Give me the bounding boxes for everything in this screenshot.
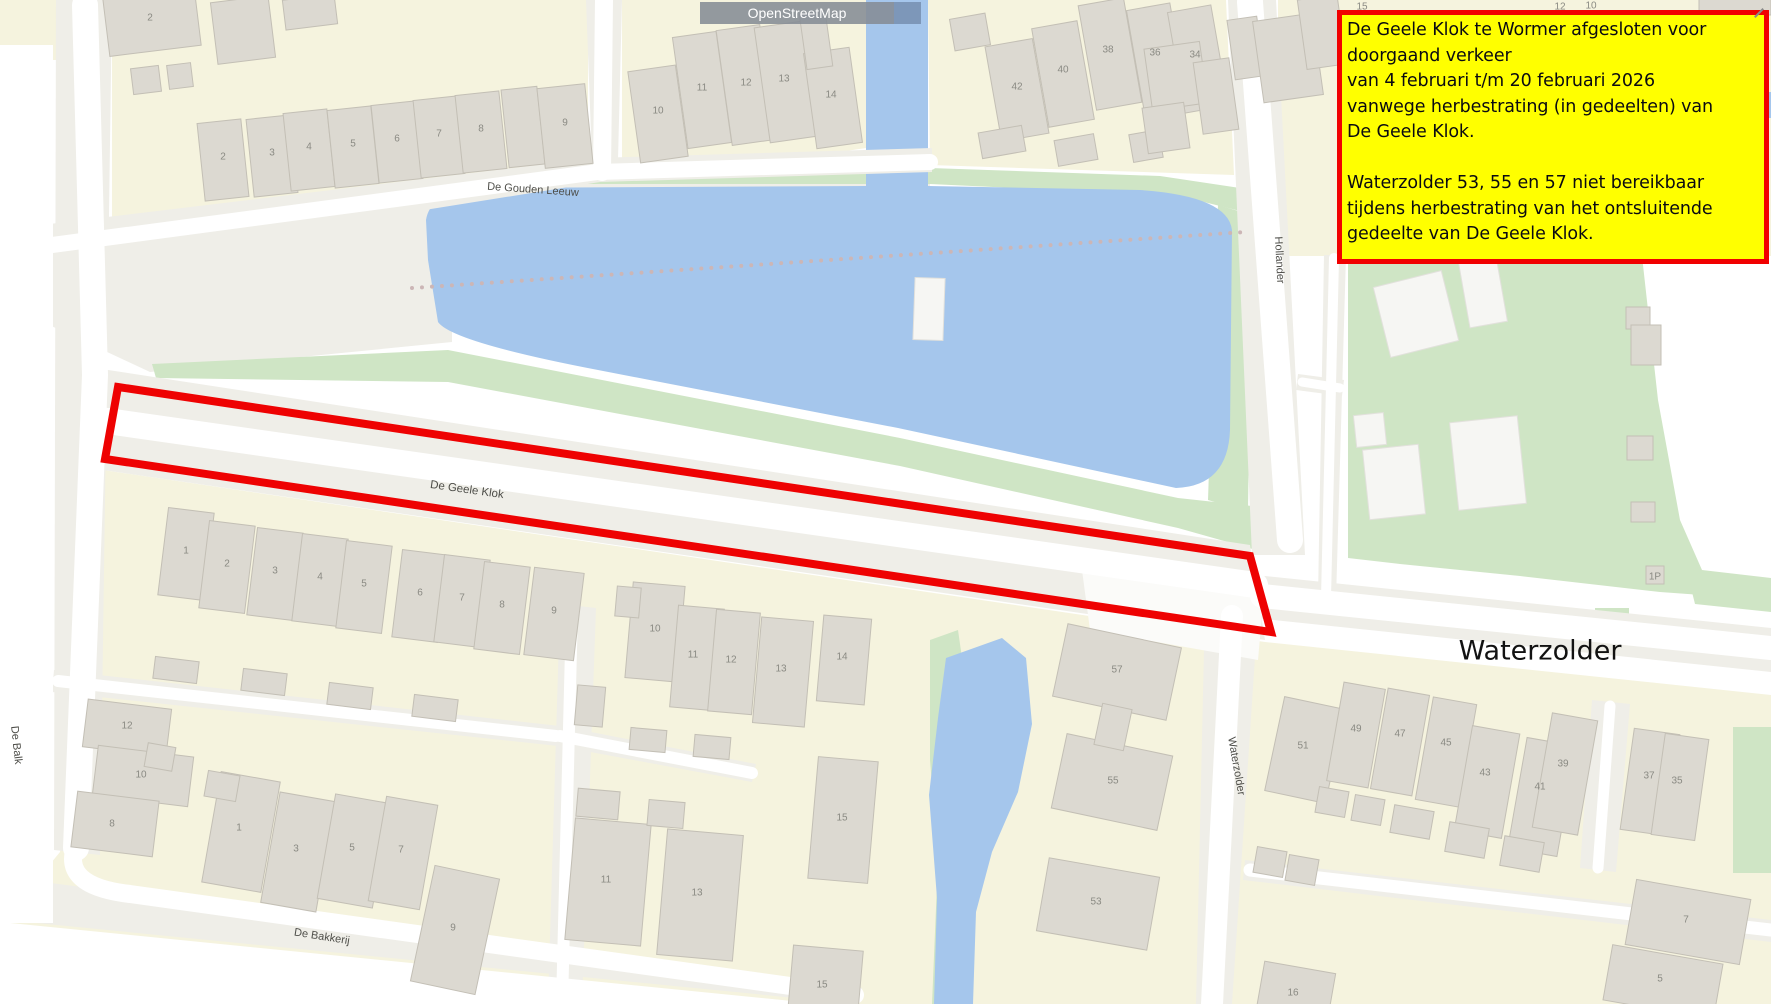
building	[1500, 836, 1545, 872]
house-number: 2	[224, 559, 230, 570]
closure-note-line: Waterzolder 53, 55 en 57 niet bereikbaar	[1347, 171, 1759, 197]
building	[949, 13, 990, 51]
house-number: 14	[836, 652, 848, 663]
house-number: 5	[361, 579, 367, 590]
house-number: 10	[649, 624, 661, 635]
building	[412, 694, 458, 721]
closure-note-line: van 4 februari t/m 20 februari 2026	[1347, 69, 1759, 95]
building	[241, 668, 287, 695]
house-number: 5	[349, 843, 355, 854]
building	[693, 734, 731, 759]
house-number: 10	[135, 770, 147, 781]
house-number: 49	[1350, 724, 1362, 735]
house-number: 12	[121, 721, 133, 732]
building	[629, 727, 667, 752]
building	[1351, 795, 1385, 826]
house-number: 10	[652, 106, 664, 117]
closure-note-line: De Geele Klok.	[1347, 120, 1759, 146]
osm-attribution[interactable]: OpenStreetMap	[700, 2, 894, 24]
closure-note-line: De Geele Klok te Wormer afgesloten voor	[1347, 18, 1759, 44]
building	[1631, 325, 1661, 365]
house-number: 45	[1440, 738, 1452, 749]
building	[576, 788, 620, 820]
house-number: 1	[183, 546, 189, 557]
house-number: 7	[459, 593, 465, 604]
house-number: 7	[1683, 915, 1689, 926]
closure-note-line: doorgaand verkeer	[1347, 44, 1759, 70]
building	[204, 770, 240, 801]
house-number: 41	[1534, 782, 1546, 793]
osm-attribution-label: OpenStreetMap	[748, 5, 847, 21]
house-number: 13	[691, 888, 703, 899]
house-number: 12	[725, 655, 737, 666]
map-viewport[interactable]: 2234567891011121314424038363415121012345…	[0, 0, 1771, 1004]
building	[1353, 413, 1386, 448]
house-number: 16	[1287, 988, 1299, 999]
building	[144, 743, 176, 771]
closure-note-line: vanwege herbestrating (in gedeelten) van	[1347, 95, 1759, 121]
closure-note-box: De Geele Klok te Wormer afgesloten voord…	[1337, 10, 1769, 264]
building	[71, 791, 159, 857]
building	[615, 586, 642, 618]
building	[1362, 444, 1425, 519]
building	[327, 682, 373, 709]
closure-note-line: tijdens herbestrating van het ontsluiten…	[1347, 197, 1759, 223]
house-number: 11	[601, 875, 612, 886]
house-number: 4	[317, 572, 323, 583]
building	[1285, 855, 1319, 886]
house-number: 9	[450, 923, 456, 934]
house-number: 3	[293, 844, 299, 855]
house-number: 11	[688, 650, 699, 661]
house-number: 40	[1057, 65, 1069, 76]
house-number: 3	[269, 148, 275, 159]
house-number: 12	[740, 78, 752, 89]
building	[1315, 787, 1349, 818]
house-number: 43	[1479, 768, 1491, 779]
house-number: 8	[109, 819, 115, 830]
house-number: 47	[1394, 729, 1406, 740]
building	[787, 945, 864, 1004]
house-number: 7	[436, 129, 442, 140]
building	[1142, 102, 1190, 153]
house-number: 7	[398, 845, 404, 856]
house-number: 36	[1149, 48, 1161, 59]
building	[1627, 436, 1653, 460]
house-number: 9	[551, 606, 557, 617]
house-number: 6	[417, 588, 423, 599]
house-number: 15	[816, 980, 828, 991]
house-number: 9	[562, 118, 568, 129]
area-label: Waterzolder	[1459, 635, 1623, 666]
house-number: 6	[394, 134, 400, 145]
resize-handle-icon	[1754, 8, 1764, 18]
house-number: 55	[1107, 776, 1119, 787]
street-name-label: Hollander	[1272, 236, 1286, 284]
house-number: 13	[775, 664, 787, 675]
building	[913, 277, 945, 340]
house-number: 37	[1643, 771, 1655, 782]
building	[1445, 822, 1490, 858]
house-number: 14	[825, 90, 837, 101]
building	[1253, 847, 1287, 878]
house-number: 4	[306, 142, 312, 153]
house-number: 15	[836, 813, 848, 824]
house-number: 11	[697, 83, 708, 94]
house-number: 51	[1297, 741, 1309, 752]
house-number: 38	[1102, 45, 1114, 56]
house-number: 53	[1090, 897, 1102, 908]
building	[1631, 502, 1655, 522]
house-number: 13	[778, 74, 790, 85]
building	[574, 685, 605, 727]
house-number: 42	[1011, 82, 1023, 93]
building	[167, 63, 194, 90]
house-number: 1	[236, 823, 242, 834]
osm-attribution-cap	[894, 2, 921, 24]
building	[1450, 416, 1527, 511]
house-number: 39	[1557, 759, 1569, 770]
building	[647, 799, 685, 828]
house-number: 2	[220, 152, 226, 163]
building	[153, 656, 199, 683]
building	[131, 65, 162, 94]
closure-note-line: gedeelte van De Geele Klok.	[1347, 222, 1759, 248]
house-number: 3	[272, 566, 278, 577]
house-number: 34	[1189, 50, 1201, 61]
building	[210, 0, 275, 64]
house-number: 8	[478, 124, 484, 135]
house-number: 5	[350, 139, 356, 150]
house-number: 1P	[1649, 572, 1662, 583]
house-number: 57	[1111, 665, 1123, 676]
house-number: 8	[499, 600, 505, 611]
house-number: 5	[1657, 974, 1663, 985]
house-number: 2	[147, 13, 153, 24]
closure-note-line	[1347, 146, 1759, 172]
house-number: 35	[1671, 776, 1683, 787]
